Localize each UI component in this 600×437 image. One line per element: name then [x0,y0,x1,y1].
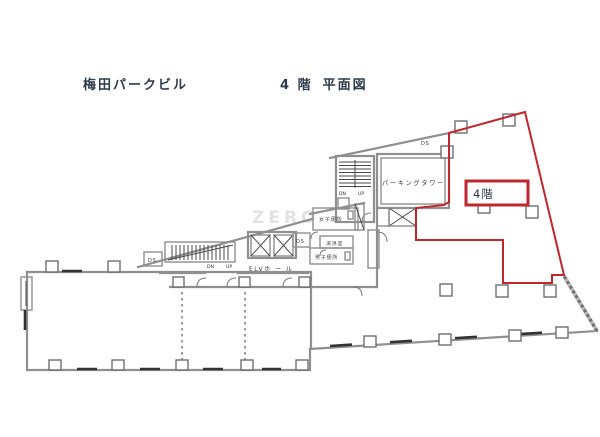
stair-top-dn-label: DN [339,191,346,197]
womens-toilet-label: 女子便所 [319,216,342,223]
parking-tower-label: パーキングタワー [382,178,445,187]
elevator-shafts [248,232,296,258]
floor-highlight-label: 4階 [473,187,494,201]
stairwell-center: DN UP [165,242,235,270]
stair-top-up-label: UP [358,191,364,197]
parking-tower: パーキングタワー [377,154,449,208]
ds-label-left: DS [148,258,157,264]
floor-plan-drawing: ZERO [0,0,600,437]
stair-center-dn-label: DN [207,264,214,270]
columns [46,114,568,370]
ds-label-corridor: DS [296,239,305,245]
duct-shaft [377,208,416,242]
hot-water-room-label: 湯沸室 [326,240,343,247]
ds-label-top: DS [421,141,430,147]
partition-dashed-lines [182,292,245,362]
floor-plan-page: 梅田パークビル4 階平面図 ZERO [0,0,600,437]
mens-toilet-label: 男子便所 [315,254,338,261]
watermark-text: ZERO [252,208,319,228]
elv-hall-label: ELVホ ー ル [249,266,293,273]
floor-highlight-box: 4階 [466,181,528,205]
stair-center-up-label: UP [226,264,232,270]
